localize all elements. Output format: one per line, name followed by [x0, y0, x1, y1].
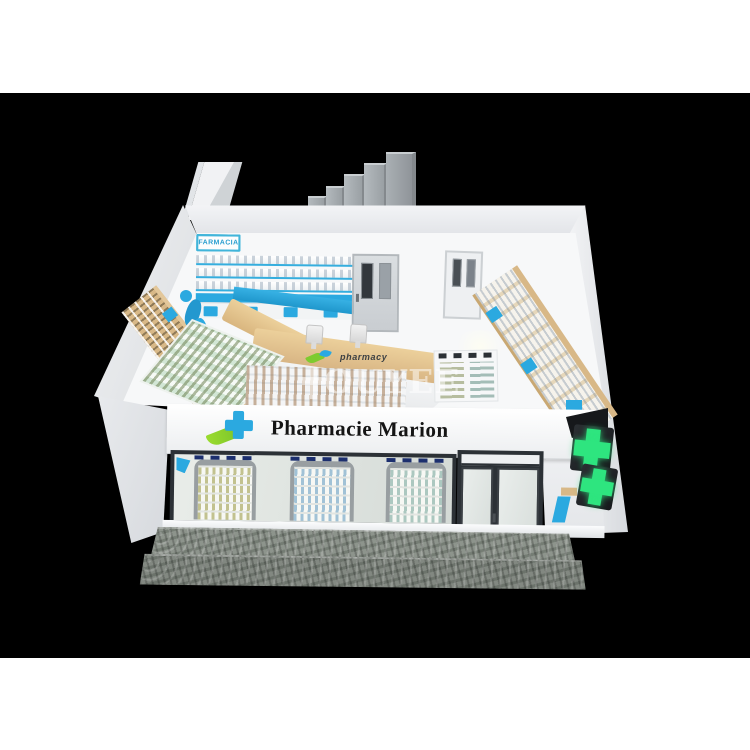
interior-reflection — [561, 487, 577, 495]
display-window — [170, 450, 457, 528]
window-glass — [174, 454, 453, 524]
window-display-unit — [194, 459, 257, 520]
blue-reflection — [176, 457, 190, 473]
window-display-unit — [290, 461, 355, 522]
display-lights — [194, 455, 256, 460]
display-lights — [290, 457, 354, 462]
display-lights — [386, 458, 446, 463]
watermark: pharmacy OUYEE — [298, 350, 458, 406]
watermark-cross-icon — [302, 377, 325, 385]
door-transom — [461, 454, 539, 466]
storefront-sign-text: Pharmacie Marion — [271, 415, 449, 442]
watermark-brand: OUYEE — [324, 362, 460, 401]
cross-logo-icon — [225, 420, 253, 431]
entrance-door — [456, 450, 543, 535]
display-products — [294, 467, 351, 522]
window-display-unit — [386, 462, 447, 523]
green-cross-sign — [576, 463, 619, 511]
blue-reflection — [552, 496, 571, 522]
display-products — [390, 468, 443, 523]
watermark-tagline: pharmacy — [340, 352, 387, 362]
door-handle — [493, 514, 496, 523]
door-glass-panel — [460, 467, 493, 530]
display-products — [198, 465, 253, 520]
door-glass-panel — [496, 468, 539, 532]
render-page: FARMACIA FARMACIA FARMACIA — [0, 0, 750, 750]
